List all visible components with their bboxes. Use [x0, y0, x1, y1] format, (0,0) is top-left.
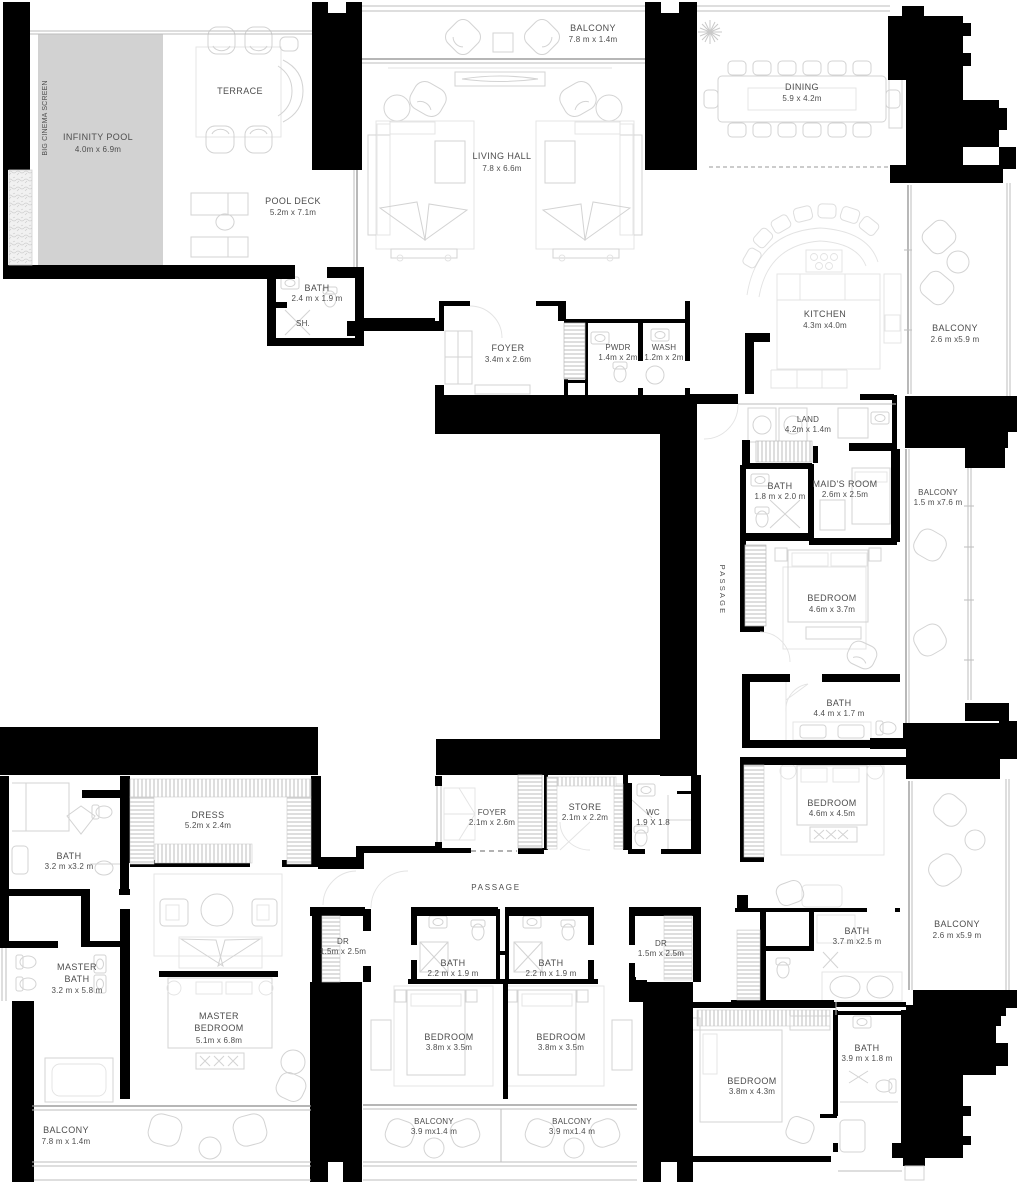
- svg-text:5.2m x 2.4m: 5.2m x 2.4m: [185, 821, 231, 830]
- svg-text:BALCONY: BALCONY: [43, 1125, 89, 1135]
- svg-text:KITCHEN: KITCHEN: [804, 309, 846, 319]
- svg-text:1.5m x 2.5m: 1.5m x 2.5m: [320, 947, 366, 956]
- svg-text:4.2m x 1.4m: 4.2m x 1.4m: [785, 425, 831, 434]
- svg-text:2.4 m x 1.9 m: 2.4 m x 1.9 m: [291, 294, 342, 303]
- svg-text:BATH: BATH: [827, 698, 852, 708]
- svg-text:BATH: BATH: [855, 1043, 880, 1053]
- svg-text:BEDROOM: BEDROOM: [807, 593, 856, 603]
- svg-text:1.2m x 2m: 1.2m x 2m: [644, 353, 683, 362]
- svg-text:5.2m x 7.1m: 5.2m x 7.1m: [270, 208, 316, 217]
- svg-text:2.6 m x5.9 m: 2.6 m x5.9 m: [931, 335, 980, 344]
- svg-text:BEDROOM: BEDROOM: [807, 798, 856, 808]
- svg-text:FOYER: FOYER: [491, 343, 524, 353]
- svg-text:3.8m x 3.5m: 3.8m x 3.5m: [538, 1043, 584, 1052]
- svg-text:BALCONY: BALCONY: [934, 919, 980, 929]
- svg-text:MAID'S ROOM: MAID'S ROOM: [812, 479, 877, 489]
- svg-text:3.8m x 3.5m: 3.8m x 3.5m: [426, 1043, 472, 1052]
- svg-text:FOYER: FOYER: [478, 808, 507, 817]
- svg-text:BATH: BATH: [65, 974, 90, 984]
- svg-text:3.2 m x 5.8 m: 3.2 m x 5.8 m: [51, 986, 102, 995]
- svg-text:2.6 m x5.9 m: 2.6 m x5.9 m: [933, 931, 982, 940]
- svg-text:BALCONY: BALCONY: [570, 23, 616, 33]
- svg-text:LAND: LAND: [797, 415, 819, 424]
- svg-text:7.8 m x 1.4m: 7.8 m x 1.4m: [569, 35, 618, 44]
- svg-text:MASTER: MASTER: [199, 1011, 239, 1021]
- svg-text:PASSAGE: PASSAGE: [718, 565, 727, 616]
- svg-text:LIVING HALL: LIVING HALL: [473, 151, 532, 161]
- svg-text:DR: DR: [655, 939, 667, 948]
- svg-text:2.2 m x 1.9 m: 2.2 m x 1.9 m: [525, 969, 576, 978]
- svg-text:WASH: WASH: [652, 343, 677, 352]
- svg-text:7.8 m x 1.4m: 7.8 m x 1.4m: [42, 1137, 91, 1146]
- svg-text:TERRACE: TERRACE: [217, 86, 263, 96]
- svg-text:PWDR: PWDR: [605, 343, 630, 352]
- svg-text:2.2 m x 1.9 m: 2.2 m x 1.9 m: [427, 969, 478, 978]
- svg-text:2.1m x 2.6m: 2.1m x 2.6m: [469, 818, 515, 827]
- svg-text:3.4m x 2.6m: 3.4m x 2.6m: [485, 355, 531, 364]
- svg-text:1.5 m x7.6 m: 1.5 m x7.6 m: [914, 498, 963, 507]
- svg-text:5.9 x 4.2m: 5.9 x 4.2m: [782, 94, 821, 103]
- svg-text:BEDROOM: BEDROOM: [424, 1032, 473, 1042]
- svg-text:BEDROOM: BEDROOM: [194, 1023, 243, 1033]
- svg-text:4.6m x 4.5m: 4.6m x 4.5m: [809, 809, 855, 818]
- svg-text:BEDROOM: BEDROOM: [727, 1076, 776, 1086]
- svg-text:DRESS: DRESS: [191, 810, 224, 820]
- svg-text:4.6m x 3.7m: 4.6m x 3.7m: [809, 605, 855, 614]
- svg-text:BATH: BATH: [539, 958, 564, 968]
- svg-text:BALCONY: BALCONY: [414, 1117, 454, 1126]
- svg-text:3.9 m x 1.8 m: 3.9 m x 1.8 m: [841, 1054, 892, 1063]
- svg-text:1.4m x 2m: 1.4m x 2m: [598, 353, 637, 362]
- svg-text:BIG CINEMA SCREEN: BIG CINEMA SCREEN: [42, 80, 49, 155]
- svg-text:5.1m x 6.8m: 5.1m x 6.8m: [196, 1036, 242, 1045]
- svg-text:1.9 X 1.8: 1.9 X 1.8: [636, 818, 670, 827]
- svg-text:INFINITY POOL: INFINITY POOL: [63, 132, 133, 142]
- svg-text:1.5m x 2.5m: 1.5m x 2.5m: [638, 949, 684, 958]
- svg-text:BATH: BATH: [845, 926, 870, 936]
- svg-text:1.8 m x 2.0 m: 1.8 m x 2.0 m: [754, 492, 805, 501]
- svg-text:WC: WC: [646, 808, 660, 817]
- svg-text:3.9 mx1.4 m: 3.9 mx1.4 m: [549, 1127, 595, 1136]
- svg-text:DR: DR: [337, 937, 349, 946]
- svg-text:3.7 m x2.5 m: 3.7 m x2.5 m: [833, 937, 882, 946]
- svg-text:DINING: DINING: [785, 82, 819, 92]
- svg-text:BATH: BATH: [305, 283, 330, 293]
- svg-text:4.4 m x 1.7 m: 4.4 m x 1.7 m: [813, 709, 864, 718]
- svg-text:POOL DECK: POOL DECK: [265, 196, 321, 206]
- svg-text:PASSAGE: PASSAGE: [471, 883, 521, 892]
- svg-text:BATH: BATH: [57, 851, 82, 861]
- svg-text:BATH: BATH: [441, 958, 466, 968]
- svg-text:3.2 m x3.2 m: 3.2 m x3.2 m: [45, 862, 94, 871]
- svg-text:BALCONY: BALCONY: [918, 488, 958, 497]
- svg-text:4.0m x 6.9m: 4.0m x 6.9m: [75, 145, 121, 154]
- svg-text:STORE: STORE: [569, 802, 602, 812]
- svg-text:BATH: BATH: [768, 481, 793, 491]
- svg-text:SH.: SH.: [296, 319, 310, 328]
- svg-text:BALCONY: BALCONY: [552, 1117, 592, 1126]
- svg-text:4.3m x4.0m: 4.3m x4.0m: [803, 321, 847, 330]
- svg-text:7.8 x 6.6m: 7.8 x 6.6m: [482, 164, 521, 173]
- svg-text:MASTER: MASTER: [57, 962, 97, 972]
- svg-text:BALCONY: BALCONY: [932, 323, 978, 333]
- svg-text:BEDROOM: BEDROOM: [536, 1032, 585, 1042]
- svg-text:2.6m x 2.5m: 2.6m x 2.5m: [822, 490, 868, 499]
- svg-text:3.9 mx1.4 m: 3.9 mx1.4 m: [411, 1127, 457, 1136]
- svg-text:2.1m x 2.2m: 2.1m x 2.2m: [562, 813, 608, 822]
- svg-text:3.8m x 4.3m: 3.8m x 4.3m: [729, 1087, 775, 1096]
